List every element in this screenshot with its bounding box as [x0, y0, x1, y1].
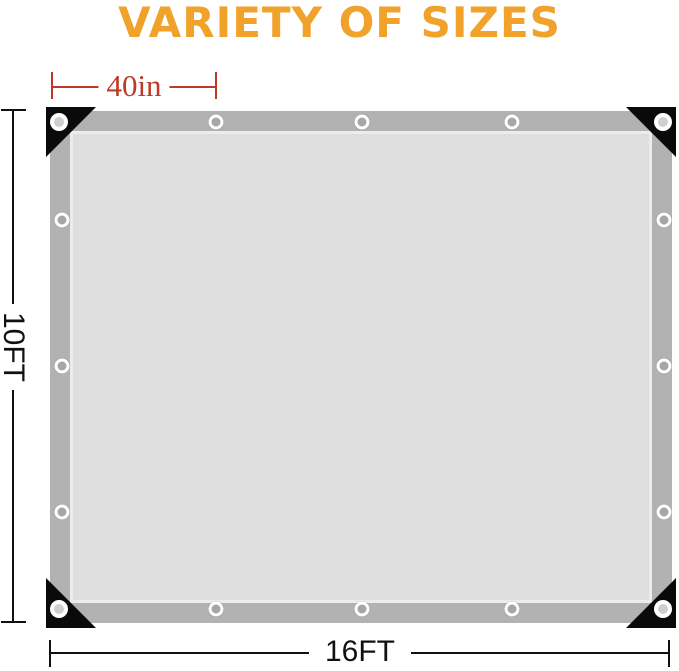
grommet-icon: [505, 602, 520, 617]
page-title: VARIETY OF SIZES: [0, 0, 679, 47]
grommet-icon: [657, 213, 672, 228]
grommet-icon: [657, 505, 672, 520]
grommet-icon: [209, 115, 224, 130]
height-label: 10FT: [0, 304, 31, 390]
grommet-spacing-label: 40in: [98, 69, 169, 103]
grommet-icon: [654, 600, 672, 618]
width-label: 16FT: [309, 634, 411, 670]
grommet-icon: [505, 115, 520, 130]
tarp-diagram: [50, 111, 672, 623]
dimension-tick: [1, 621, 26, 623]
grommet-icon: [55, 213, 70, 228]
dimension-tick: [668, 640, 670, 667]
grommet-icon: [355, 115, 370, 130]
grommet-icon: [654, 113, 672, 131]
grommet-icon: [209, 602, 224, 617]
grommet-icon: [657, 359, 672, 374]
tarp-surface: [70, 131, 652, 603]
grommet-icon: [355, 602, 370, 617]
grommet-icon: [55, 505, 70, 520]
grommet-icon: [50, 600, 68, 618]
grommet-icon: [55, 359, 70, 374]
grommet-icon: [50, 113, 68, 131]
dimension-tick: [215, 72, 217, 99]
product-size-diagram: VARIETY OF SIZES 40in 10FT 16FT: [0, 0, 679, 671]
